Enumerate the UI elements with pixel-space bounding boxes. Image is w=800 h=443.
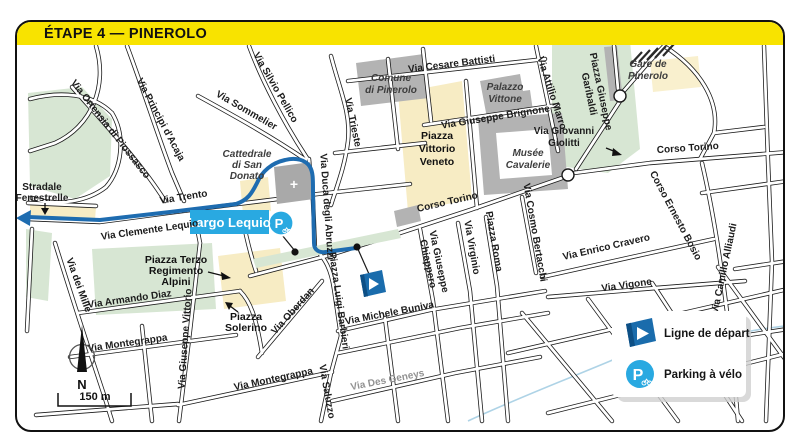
stage-header: ÉTAPE 4 — PINEROLO: [17, 22, 783, 45]
legend-start-label: Ligne de départ: [664, 328, 750, 340]
route-direction-arrow: [17, 210, 31, 226]
label-cattedrale: Cattedraledi SanDonato: [223, 149, 272, 182]
legend: Ligne de départ P Parking à vélo: [612, 311, 751, 402]
street-label-principi: Via Principi d'Acaja: [134, 77, 187, 164]
street-label-chiappero: Via GiuseppeChiappero: [416, 230, 451, 297]
highlight-label: Largo Lequio: [188, 215, 270, 230]
label-solerino: PiazzaSolerino: [225, 311, 267, 334]
svg-text:Stradale: Stradale: [22, 182, 62, 193]
start-flag-icon: [360, 270, 386, 297]
scale-label: 150 m: [79, 391, 110, 403]
scale-bar: 150 m: [58, 391, 131, 406]
label-vittorio-veneto: PiazzaVittorioVeneto: [419, 130, 456, 168]
cathedral-cross-icon: +: [290, 176, 298, 192]
street-label-corso-torino-e: Corso Torino: [657, 141, 720, 156]
north-label: N: [77, 377, 86, 392]
svg-text:P: P: [633, 367, 644, 384]
label-palazzo-vittone: PalazzoVittone: [487, 82, 524, 105]
bike-parking-icon: P: [269, 211, 294, 236]
start-point-dot: [353, 243, 360, 250]
stage-title: ÉTAPE 4 — PINEROLO: [44, 26, 207, 42]
roundabout-torino: [562, 169, 574, 181]
map-frame: ÉTAPE 4 — PINEROLO: [15, 20, 785, 432]
city-map: + P Largo Lequio: [17, 45, 783, 426]
label-gare: Gare dePinerolo: [628, 59, 668, 82]
label-comune: Comunedi Pinerolo: [365, 73, 417, 96]
bike-parking-icon: P: [626, 360, 654, 388]
roundabout-station: [614, 90, 626, 102]
svg-text:P: P: [275, 216, 284, 231]
street-label-piazza-roma: Piazza Roma: [483, 211, 505, 274]
street-label-luigi-barbieri: Piazza Luigi Barbieri: [326, 251, 351, 350]
street-label-enrico-cravero: Via Enrico Cravero: [562, 232, 651, 263]
street-label-trieste: Via Trieste: [342, 97, 363, 148]
street-label-duca-abruzzi: Via Duca degli Abruzzi: [317, 153, 335, 260]
street-label-trento: Via Trento: [159, 188, 208, 206]
parking-point-dot: [291, 248, 298, 255]
legend-parking-label: Parking à vélo: [664, 369, 742, 381]
svg-text:Fenestrelle: Fenestrelle: [17, 193, 69, 204]
